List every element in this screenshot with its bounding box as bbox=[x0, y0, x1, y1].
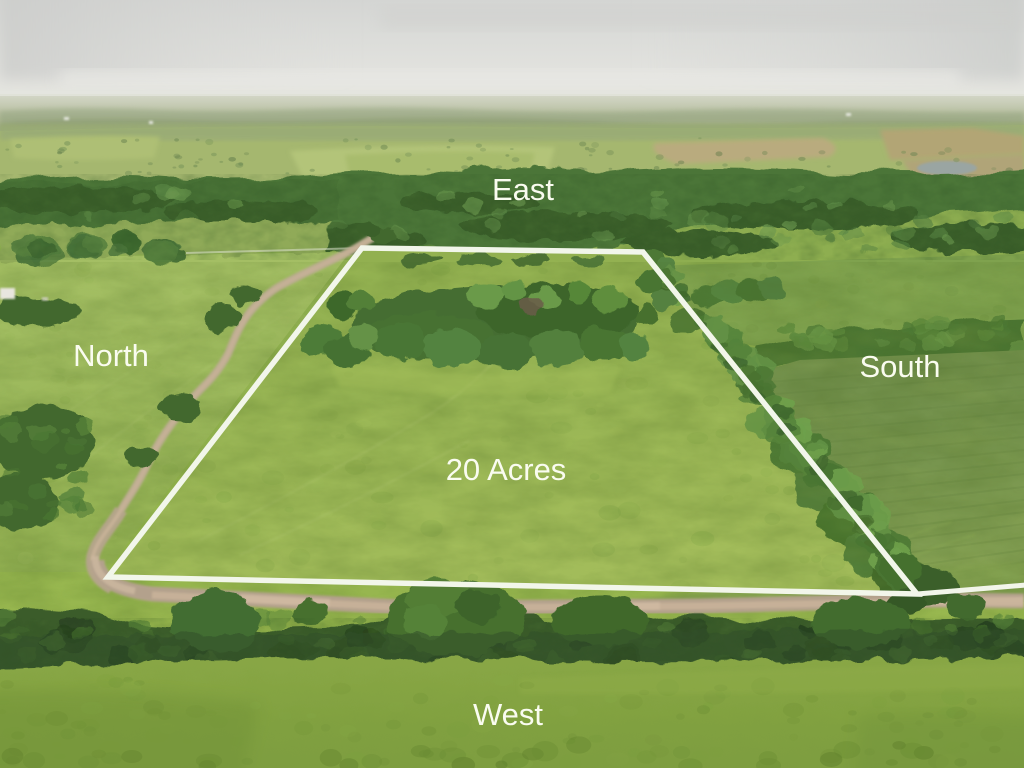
svg-text:South: South bbox=[859, 349, 940, 384]
svg-text:20 Acres: 20 Acres bbox=[446, 452, 567, 487]
svg-text:North: North bbox=[73, 338, 149, 373]
svg-text:West: West bbox=[473, 697, 543, 732]
svg-text:East: East bbox=[492, 172, 554, 207]
